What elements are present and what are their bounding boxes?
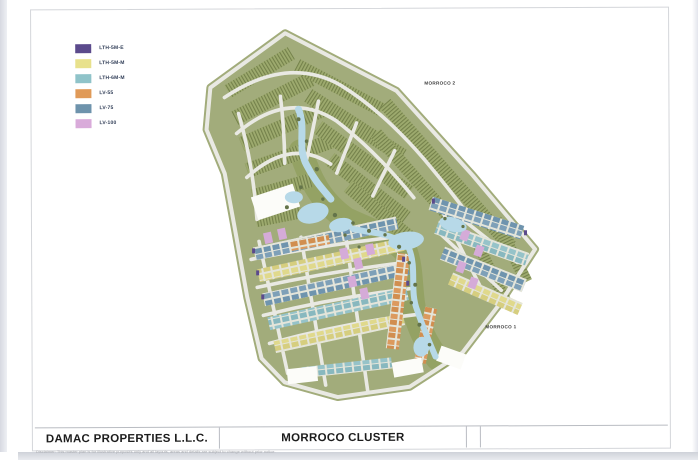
legend-swatch <box>75 44 91 53</box>
legend-label: LTH-5M-E <box>99 44 124 53</box>
title-block: DAMAC PROPERTIES L.L.C. MORROCO CLUSTER <box>35 425 668 450</box>
legend-label: LV-100 <box>100 119 117 128</box>
scan-edge-right <box>692 0 698 455</box>
legend-item: LTH-5M-M <box>75 59 185 68</box>
title-block-spacer-cell <box>467 426 481 447</box>
cluster-title-cell: MORROCO CLUSTER <box>220 426 467 448</box>
scan-edge-left <box>0 0 7 452</box>
company-name-cell: DAMAC PROPERTIES L.L.C. <box>35 428 220 450</box>
cluster-title: MORROCO CLUSTER <box>281 431 404 444</box>
legend-label: LV-75 <box>99 104 113 113</box>
company-name: DAMAC PROPERTIES L.L.C. <box>46 432 208 445</box>
legend: LTH-5M-E LTH-5M-M LTH-6M-M LV-55 LV-75 L… <box>75 44 185 134</box>
legend-label: LTH-5M-M <box>99 59 124 68</box>
legend-swatch <box>75 74 91 83</box>
map-label-morroco-2: MORROCO 2 <box>424 81 455 86</box>
legend-swatch <box>76 119 92 128</box>
legend-item: LTH-6M-M <box>75 74 185 83</box>
scanned-masterplan-page: { "legend": { "items": [ { "label": "LTH… <box>0 0 698 460</box>
legend-swatch <box>75 104 91 113</box>
legend-label: LTH-6M-M <box>99 74 124 83</box>
legend-swatch <box>75 89 91 98</box>
legend-item: LV-100 <box>76 119 186 128</box>
plan-sheet: MORROCO 2 MORROCO 1 LTH-5M-E LTH-5M-M LT… <box>30 7 671 452</box>
legend-item: LTH-5M-E <box>75 44 185 53</box>
map-label-morroco-1: MORROCO 1 <box>485 324 516 329</box>
legend-label: LV-55 <box>99 89 113 98</box>
legend-swatch <box>75 59 91 68</box>
legend-item: LV-75 <box>75 104 185 113</box>
title-block-empty-cell <box>481 426 668 448</box>
fine-print-disclaimer: Disclaimer: This master plan is for illu… <box>36 449 396 454</box>
legend-item: LV-55 <box>75 89 185 98</box>
